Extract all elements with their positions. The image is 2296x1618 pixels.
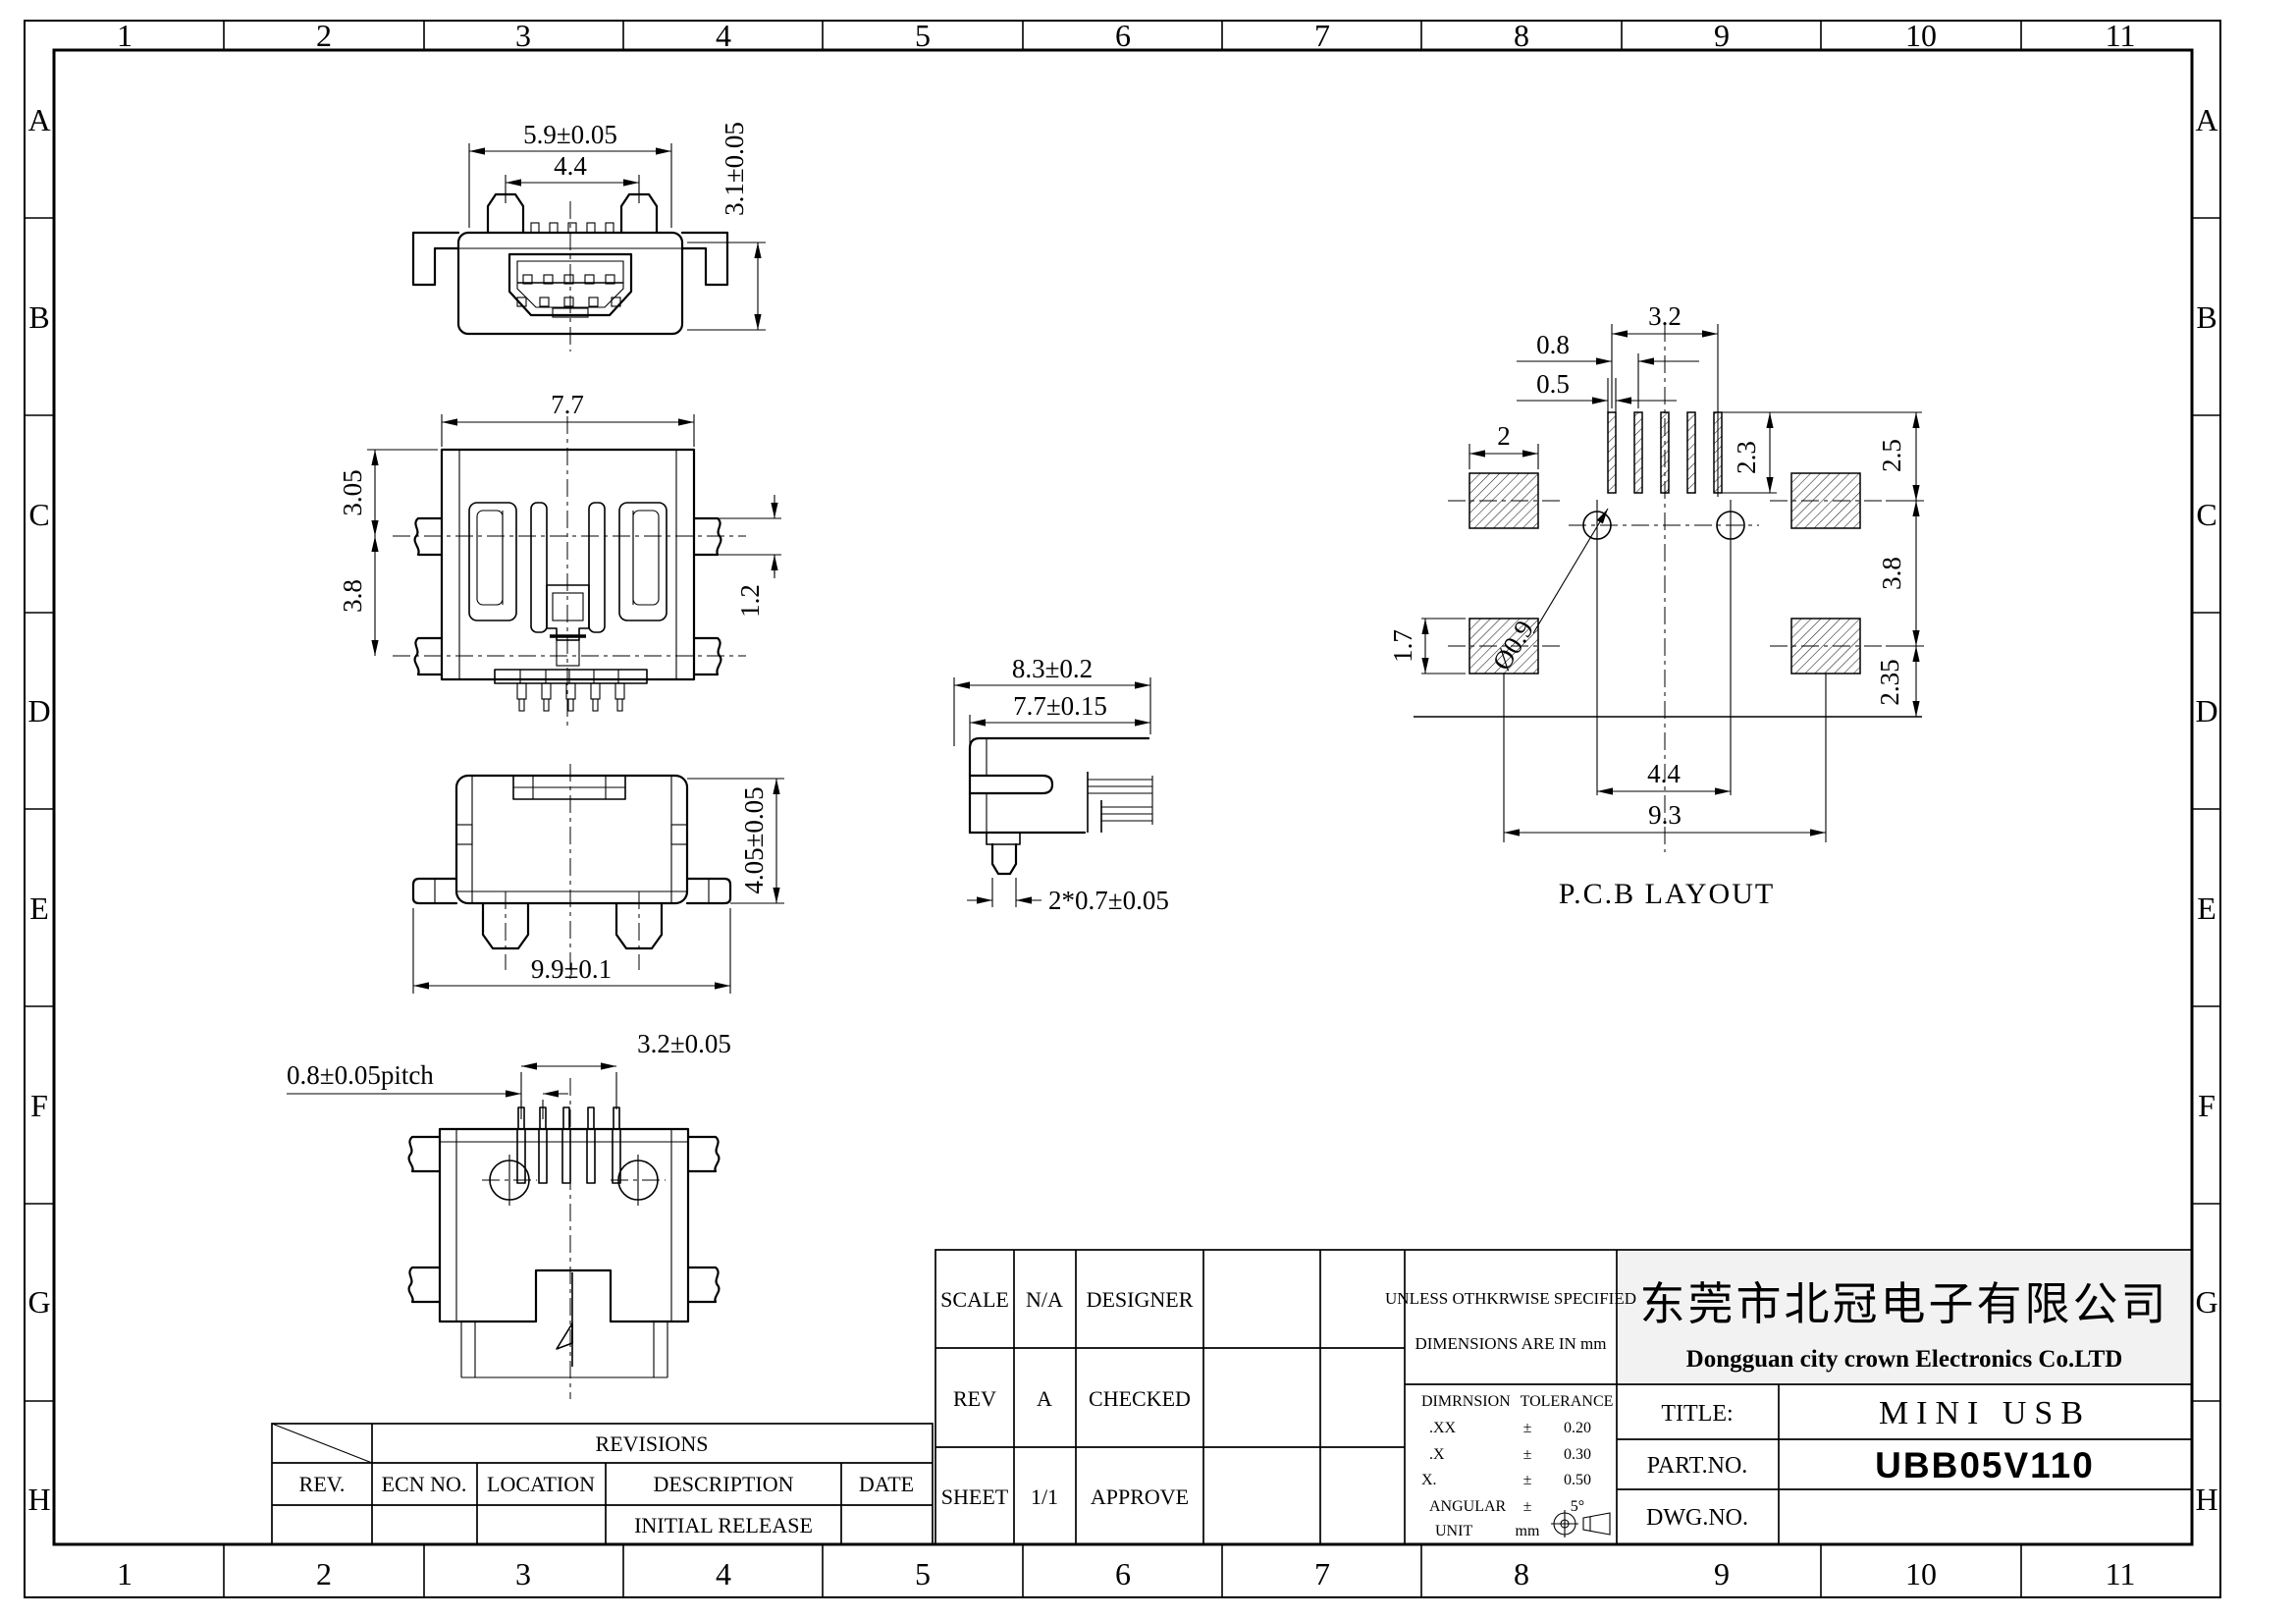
dim-pcb-slot-span: 3.2 — [1648, 301, 1682, 331]
grid-col-label: 8 — [1514, 18, 1529, 53]
dim-back-width: 9.9±0.1 — [531, 954, 612, 984]
revisions-row-description: INITIAL RELEASE — [634, 1513, 813, 1537]
dim-top-lower: 3.8 — [338, 579, 367, 613]
part-no-value: UBB05V110 — [1875, 1445, 2095, 1485]
grid-row-label: C — [2196, 497, 2216, 532]
bottom-view-pins — [517, 1107, 620, 1183]
revisions-header-description: DESCRIPTION — [653, 1472, 793, 1496]
tol-row-value: 0.20 — [1564, 1420, 1591, 1436]
grid-col-label: 5 — [915, 1556, 931, 1591]
dim-pcb-pad-height: 1.7 — [1388, 629, 1417, 663]
spec-line2: DIMENSIONS ARE IN mm — [1415, 1334, 1606, 1353]
grid-row-label: A — [27, 102, 50, 137]
grid-row-label: C — [28, 497, 49, 532]
tol-row-value: 5° — [1571, 1498, 1584, 1515]
tol-row-label: X. — [1421, 1472, 1437, 1488]
tolerance-tol-header: TOLERANCE — [1521, 1393, 1614, 1410]
rev-value: A — [1037, 1386, 1052, 1411]
drawing-sheet: 1 2 3 4 5 6 7 8 9 10 11 1 2 3 4 5 6 7 8 … — [0, 0, 2296, 1618]
grid-col-label: 8 — [1514, 1556, 1529, 1591]
grid-col-label: 11 — [2106, 1556, 2136, 1591]
side-dimensions: 8.3±0.2 7.7±0.15 2*0.7±0.05 — [954, 654, 1169, 915]
view-bottom: 3.2±0.05 0.8±0.05pitch — [287, 1029, 731, 1399]
view-top: 7.7 3.05 3.8 1.2 — [338, 390, 781, 728]
view-pcb-layout: 3.2 0.8 0.5 2 2.3 2.5 3.8 2.35 1.7 — [1388, 301, 1924, 910]
grid-row-label: H — [27, 1482, 50, 1517]
scale-label: SCALE — [940, 1287, 1009, 1312]
tol-row-sign: ± — [1523, 1498, 1532, 1515]
dim-bottom-span: 3.2±0.05 — [637, 1029, 731, 1058]
grid-row-label: A — [2195, 102, 2217, 137]
front-top-bumps — [531, 223, 614, 233]
dim-back-height: 4.05±0.05 — [739, 786, 769, 893]
grid-col-label: 5 — [915, 18, 931, 53]
grid-row-label: B — [28, 299, 49, 335]
checked-label: CHECKED — [1089, 1386, 1191, 1411]
grid-col-label: 4 — [716, 18, 731, 53]
dim-side-outer: 8.3±0.2 — [1012, 654, 1093, 683]
dim-bottom-pitch: 0.8±0.05pitch — [287, 1060, 434, 1090]
grid-col-label: 9 — [1714, 18, 1730, 53]
grid-row-label: E — [2197, 890, 2216, 926]
dim-front-outer: 5.9±0.05 — [523, 120, 617, 149]
company-name-cn: 东莞市北冠电子有限公司 — [1640, 1279, 2169, 1329]
tol-row-sign: ± — [1523, 1420, 1532, 1436]
grid-row-label: H — [2195, 1482, 2217, 1517]
revisions-table: REVISIONS REV. ECN NO. LOCATION DESCRIPT… — [272, 1424, 933, 1544]
tol-row-label: .XX — [1429, 1420, 1457, 1436]
tol-row-label: .X — [1429, 1446, 1445, 1463]
dim-side-posts: 2*0.7±0.05 — [1048, 886, 1169, 915]
title-value: MINI USB — [1879, 1395, 2091, 1431]
sheet-label: SHEET — [941, 1484, 1009, 1509]
grid-col-label: 10 — [1905, 18, 1937, 53]
grid-col-label: 6 — [1115, 1556, 1131, 1591]
grid-row-label: D — [27, 693, 50, 728]
grid-col-label: 6 — [1115, 18, 1131, 53]
dwg-no-label: DWG.NO. — [1646, 1505, 1748, 1531]
dim-side-inner: 7.7±0.15 — [1013, 691, 1107, 721]
grid-row-label: D — [2195, 693, 2217, 728]
revisions-header-date: DATE — [859, 1472, 914, 1496]
dim-pcb-lower: 2.35 — [1875, 659, 1904, 705]
grid-col-label: 7 — [1314, 1556, 1330, 1591]
dim-front-height: 3.1±0.05 — [720, 122, 749, 216]
grid-row-label: B — [2196, 299, 2216, 335]
tol-row-sign: ± — [1523, 1446, 1532, 1463]
tol-row-value: 0.30 — [1564, 1446, 1591, 1463]
dim-pcb-slot-length: 2.3 — [1732, 441, 1761, 474]
view-front: 5.9±0.05 4.4 3.1±0.05 — [413, 120, 766, 351]
dim-front-inner: 4.4 — [554, 151, 587, 181]
grid-col-label: 4 — [716, 1556, 731, 1591]
dim-pcb-mid: 3.8 — [1877, 557, 1906, 590]
dim-top-width: 7.7 — [551, 390, 584, 419]
scale-value: N/A — [1026, 1287, 1063, 1312]
sheet-value: 1/1 — [1031, 1484, 1058, 1509]
revisions-diagonal — [272, 1424, 372, 1463]
dim-pcb-pad-span: 9.3 — [1648, 800, 1682, 830]
grid-col-label: 3 — [515, 1556, 531, 1591]
dim-pcb-hole-span: 4.4 — [1647, 759, 1681, 788]
view-side: 8.3±0.2 7.7±0.15 2*0.7±0.05 — [954, 654, 1169, 915]
designer-label: DESIGNER — [1087, 1287, 1194, 1312]
title-label: TITLE: — [1661, 1401, 1733, 1427]
revisions-header-location: LOCATION — [487, 1472, 595, 1496]
grid-col-label: 2 — [316, 18, 332, 53]
tol-row-sign: mm — [1516, 1523, 1540, 1539]
grid-col-label: 9 — [1714, 1556, 1730, 1591]
pcb-dimensions: 3.2 0.8 0.5 2 2.3 2.5 3.8 2.35 1.7 — [1388, 301, 1924, 833]
grid-col-label: 1 — [117, 1556, 133, 1591]
rev-label: REV — [953, 1386, 996, 1411]
pcb-layout-label: P.C.B LAYOUT — [1559, 878, 1775, 910]
back-dimensions: 4.05±0.05 9.9±0.1 — [413, 779, 784, 994]
front-contacts — [517, 275, 620, 317]
company-name-en: Dongguan city crown Electronics Co.LTD — [1686, 1346, 2123, 1373]
spec-line1: UNLESS OTHKRWISE SPECIFIED — [1385, 1289, 1636, 1308]
tolerance-table: DIMRNSION TOLERANCE .XX ± 0.20 .X ± 0.30… — [1421, 1393, 1613, 1539]
dim-top-leg: 1.2 — [735, 584, 765, 618]
grid-row-label: G — [27, 1284, 50, 1320]
tol-row-label: UNIT — [1435, 1523, 1472, 1539]
tol-row-sign: ± — [1523, 1472, 1532, 1488]
bottom-dimensions: 3.2±0.05 0.8±0.05pitch — [287, 1029, 731, 1119]
front-dimensions: 5.9±0.05 4.4 3.1±0.05 — [469, 120, 766, 330]
grid-col-label: 7 — [1314, 18, 1330, 53]
grid-row-label: F — [2198, 1088, 2216, 1123]
grid-col-label: 1 — [117, 18, 133, 53]
grid-row-label: E — [29, 890, 49, 926]
grid-col-label: 11 — [2106, 18, 2136, 53]
grid-row-label: G — [2195, 1284, 2217, 1320]
approve-label: APPROVE — [1091, 1484, 1189, 1509]
top-view-pins — [517, 683, 624, 711]
grid-col-label: 3 — [515, 18, 531, 53]
revisions-header-rev: REV. — [299, 1472, 346, 1496]
dim-pcb-pad-width: 2 — [1497, 421, 1511, 451]
top-dimensions: 7.7 3.05 3.8 1.2 — [338, 390, 781, 656]
dim-pcb-slot-width: 0.5 — [1536, 369, 1570, 399]
view-back: 4.05±0.05 9.9±0.1 — [413, 764, 784, 994]
grid-row-label: F — [30, 1088, 48, 1123]
dim-top-upper: 3.05 — [338, 469, 367, 515]
dim-pcb-upper: 2.5 — [1877, 439, 1906, 472]
grid-col-label: 10 — [1905, 1556, 1937, 1591]
part-no-label: PART.NO. — [1647, 1453, 1748, 1479]
title-block: SCALE N/A DESIGNER REV A CHECKED SHEET 1… — [935, 1250, 2192, 1544]
revisions-title: REVISIONS — [596, 1431, 709, 1456]
tol-row-label: ANGULAR — [1429, 1498, 1507, 1515]
grid-col-label: 2 — [316, 1556, 332, 1591]
tolerance-dim-header: DIMRNSION — [1421, 1393, 1511, 1410]
revisions-header-ecn: ECN NO. — [382, 1472, 467, 1496]
dim-pcb-pitch: 0.8 — [1536, 330, 1570, 359]
tol-row-value: 0.50 — [1564, 1472, 1591, 1488]
